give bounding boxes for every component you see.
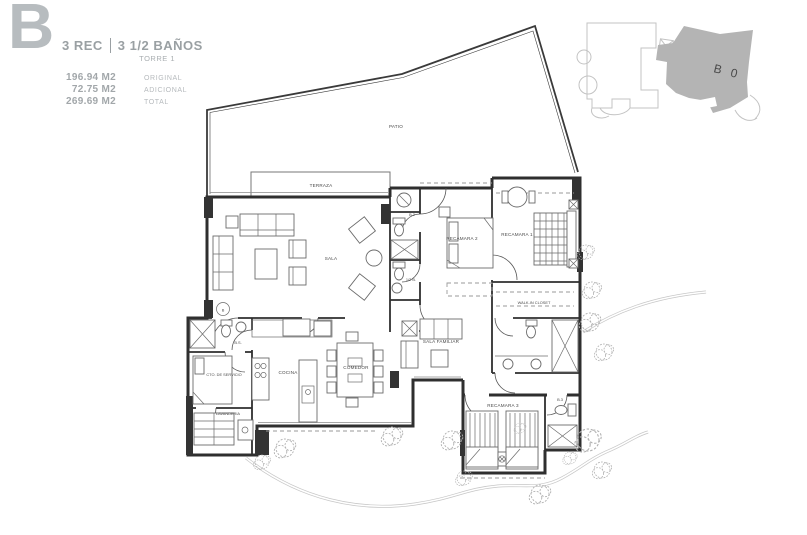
bath-2: B.2 <box>391 212 418 259</box>
entry-vestibule <box>397 193 411 207</box>
terraza-label: TERRAZA <box>310 183 334 188</box>
lavanderia: LAVANDERIA <box>194 411 253 445</box>
bano-servicio: B.S. <box>190 320 246 348</box>
bath3-label: B.3 <box>557 397 563 402</box>
half-bath: 1/2 B. <box>392 262 416 293</box>
recamara3-label: RECAMARA 3 <box>487 403 519 408</box>
terraza: TERRAZA <box>251 172 390 197</box>
comedor: COMEDOR <box>327 332 383 407</box>
sala-familiar: SALA FAMILIAR <box>401 319 462 368</box>
cocina-label: COCINA <box>278 370 298 375</box>
half-bath-label: 1/2 B. <box>406 277 416 282</box>
keyplan: B 0 <box>577 23 760 120</box>
recamara2-label: RECAMARA 2 <box>446 236 478 241</box>
door-marker-b: B <box>217 303 230 316</box>
recamara-1: RECAMARA 1 <box>501 187 578 268</box>
bath2-label: B.2 <box>409 212 415 217</box>
master-bath <box>495 320 578 372</box>
recamara-2: RECAMARA 2 <box>439 207 493 296</box>
comedor-label: COMEDOR <box>343 365 369 370</box>
floorplan-page: { "header": { "plan_letter": "B", "title… <box>0 0 807 535</box>
cuarto-servicio-label: CTO. DE SERVICIO <box>206 372 241 377</box>
walkin-closet-label: WALK-IN CLOSET <box>518 300 551 305</box>
floorplan-canvas: B 0 PATIO TERRAZA <box>0 0 807 535</box>
recamara1-label: RECAMARA 1 <box>501 232 533 237</box>
cocina: COCINA <box>252 319 332 422</box>
recamara-3: RECAMARA 3 <box>466 403 538 469</box>
cuarto-servicio: CTO. DE SERVICIO <box>193 356 242 404</box>
patio-boundary: PATIO <box>207 26 578 197</box>
ac-unit-icon <box>569 200 578 209</box>
lavanderia-label: LAVANDERIA <box>216 411 240 416</box>
sala: SALA B <box>213 214 382 316</box>
bath-3: B.3 <box>548 397 577 447</box>
svg-text:B: B <box>222 308 225 313</box>
patio-label: PATIO <box>389 124 403 129</box>
sala-familiar-label: SALA FAMILIAR <box>423 339 460 344</box>
bano-servicio-label: B.S. <box>234 340 241 345</box>
ac-unit-icon <box>569 259 578 268</box>
sala-label: SALA <box>325 256 338 261</box>
